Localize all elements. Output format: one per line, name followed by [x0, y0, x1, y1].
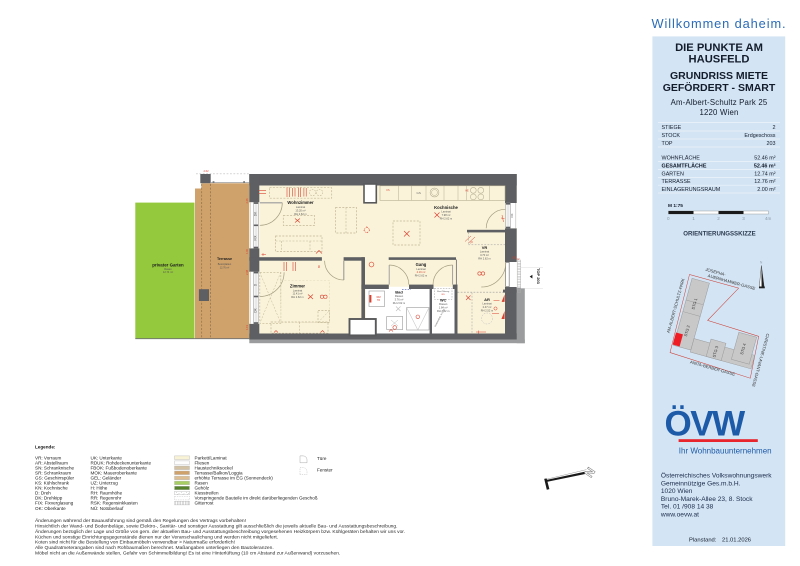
- svg-text:4m: 4m: [765, 216, 772, 221]
- svg-text:Alle Quadratmeterangaben sind: Alle Quadratmeterangaben sind nach Rohba…: [35, 545, 274, 551]
- svg-text:KS: KS: [386, 189, 390, 192]
- svg-text:100: 100: [512, 256, 517, 260]
- svg-text:HE: HE: [465, 189, 469, 192]
- svg-text:Koten sind nicht für die Beste: Koten sind nicht für die Bestellung von …: [35, 540, 235, 546]
- svg-text:Türe: Türe: [317, 456, 327, 461]
- svg-text:GARTEN: GARTEN: [662, 171, 684, 177]
- svg-text:12.76 m²: 12.76 m²: [220, 266, 230, 269]
- svg-text:RH 2.62 m: RH 2.62 m: [478, 256, 490, 260]
- svg-text:Kochnische: Kochnische: [434, 205, 458, 210]
- svg-text:3.70 m²: 3.70 m²: [480, 253, 489, 257]
- svg-text:Wohnzimmer: Wohnzimmer: [287, 200, 314, 205]
- svg-text:GESAMTFLÄCHE: GESAMTFLÄCHE: [662, 162, 707, 169]
- svg-text:Änderungen während der Bauausf: Änderungen während der Bauausführung sin…: [35, 517, 246, 524]
- svg-text:Tel. 01 /908 14 38: Tel. 01 /908 14 38: [661, 504, 714, 511]
- svg-text:1.00: 1.00: [245, 248, 249, 254]
- svg-text:2.62: 2.62: [204, 169, 210, 173]
- svg-text:DIE PUNKTE AM: DIE PUNKTE AM: [675, 42, 763, 54]
- svg-text:Erdgeschoss: Erdgeschoss: [744, 133, 775, 139]
- svg-text:Am-Albert-Schultz Park 25: Am-Albert-Schultz Park 25: [671, 98, 768, 107]
- svg-text:RH 2.62 m: RH 2.62 m: [294, 212, 306, 216]
- svg-text:Laminat: Laminat: [480, 250, 490, 254]
- svg-text:Laminat: Laminat: [296, 205, 306, 209]
- svg-text:M 1:75: M 1:75: [668, 203, 683, 209]
- svg-text:Bad: Bad: [395, 290, 403, 295]
- svg-text:RH 2.62 m: RH 2.62 m: [440, 216, 452, 220]
- svg-text:Fliesen: Fliesen: [395, 294, 404, 298]
- svg-text:privater Garten: privater Garten: [152, 262, 184, 267]
- svg-text:Laminat: Laminat: [441, 210, 451, 214]
- svg-text:STOCK: STOCK: [662, 133, 681, 139]
- svg-text:3.76 m²: 3.76 m²: [395, 298, 404, 302]
- svg-text:ORIENTIERUNGSSKIZZE: ORIENTIERUNGSSKIZZE: [683, 231, 755, 238]
- svg-text:1220 Wien: 1220 Wien: [699, 108, 738, 117]
- svg-text:52.46 m²: 52.46 m²: [754, 155, 775, 161]
- svg-text:4.16 m²: 4.16 m²: [417, 270, 426, 274]
- svg-text:Möbel nicht an die Außenwände: Möbel nicht an die Außenwände stellen, G…: [35, 551, 340, 557]
- svg-text:Fenster: Fenster: [317, 467, 333, 472]
- svg-text:3: 3: [742, 216, 745, 221]
- svg-text:1: 1: [692, 216, 695, 221]
- svg-text:RH 2.62 m: RH 2.62 m: [415, 274, 427, 278]
- svg-text:7.98 m²: 7.98 m²: [442, 213, 451, 217]
- svg-text:WOHNFLÄCHE: WOHNFLÄCHE: [662, 154, 701, 161]
- svg-text:0: 0: [667, 216, 670, 221]
- svg-text:2: 2: [773, 125, 776, 131]
- svg-text:TOP 203: TOP 203: [536, 268, 541, 285]
- svg-text:Rev.Öffnung: Rev.Öffnung: [437, 290, 450, 293]
- svg-text:TERRASSE: TERRASSE: [662, 179, 691, 185]
- svg-text:Betonplatten: Betonplatten: [218, 263, 232, 266]
- svg-text:RH 2.62 m: RH 2.62 m: [437, 309, 449, 313]
- svg-text:EINLAGERUNGSRAUM: EINLAGERUNGSRAUM: [662, 187, 721, 193]
- svg-text:2.47 m²: 2.47 m²: [483, 305, 492, 309]
- svg-text:11.41 m²: 11.41 m²: [292, 292, 302, 296]
- svg-text:STIEGE: STIEGE: [662, 125, 682, 131]
- svg-text:Österreichisches Volkswohnungs: Österreichisches Volkswohnungswerk: [661, 472, 772, 480]
- svg-text:203: 203: [767, 141, 776, 147]
- svg-text:WC: WC: [440, 299, 447, 303]
- svg-text:DK: DK: [510, 213, 514, 217]
- svg-text:RH 2.62 m: RH 2.62 m: [393, 301, 405, 305]
- svg-text:12.74 m²: 12.74 m²: [754, 171, 775, 177]
- svg-text:Gitterrost: Gitterrost: [195, 501, 215, 506]
- svg-text:GS: GS: [417, 191, 421, 195]
- svg-text:Laminat: Laminat: [293, 288, 303, 292]
- svg-text:Laminat: Laminat: [416, 267, 426, 271]
- svg-text:Hinsichtlich der Wand- und Bod: Hinsichtlich der Wand- und Bodenbeläge, …: [35, 524, 397, 530]
- svg-text:RH 2.52 m: RH 2.52 m: [481, 309, 493, 313]
- svg-text:AR: AR: [484, 297, 490, 302]
- svg-text:21.01.2026: 21.01.2026: [722, 538, 751, 544]
- svg-text:1020 Wien: 1020 Wien: [661, 488, 693, 495]
- svg-text:Bruno-Marek-Allee 23, 8. Stock: Bruno-Marek-Allee 23, 8. Stock: [661, 496, 753, 503]
- svg-text:GEFÖRDERT - SMART: GEFÖRDERT - SMART: [663, 81, 776, 94]
- svg-text:2.38: 2.38: [245, 269, 249, 275]
- svg-text:www.oevw.at: www.oevw.at: [660, 511, 699, 518]
- svg-text:NÜ: Notüberlauf: NÜ: Notüberlauf: [91, 505, 125, 511]
- svg-text:ÖVW: ÖVW: [665, 405, 746, 444]
- svg-text:13.20 m²: 13.20 m²: [295, 208, 305, 212]
- svg-text:RH 2.62 m: RH 2.62 m: [291, 295, 303, 299]
- svg-text:Gemeinnützige Ges.m.b.H.: Gemeinnützige Ges.m.b.H.: [661, 481, 741, 488]
- svg-text:Änderungen bezüglich der Lage: Änderungen bezüglich der Lage und Größe …: [35, 528, 405, 535]
- svg-text:VR: VR: [482, 245, 488, 250]
- svg-text:1.19: 1.19: [245, 324, 249, 330]
- svg-text:N: N: [760, 261, 763, 265]
- svg-text:2.00 m²: 2.00 m²: [757, 187, 775, 193]
- svg-text:Zimmer: Zimmer: [290, 284, 305, 289]
- svg-text:2: 2: [717, 216, 720, 221]
- svg-text:52.46 m²: 52.46 m²: [754, 163, 776, 169]
- svg-text:HAUSFELD: HAUSFELD: [689, 54, 750, 66]
- svg-text:12.74 m²: 12.74 m²: [163, 270, 173, 274]
- svg-text:Legende:: Legende:: [35, 445, 56, 450]
- svg-text:FIX: FIX: [253, 235, 257, 241]
- svg-text:1.84 m²: 1.84 m²: [439, 305, 448, 309]
- svg-text:12.76 m²: 12.76 m²: [754, 179, 775, 185]
- svg-text:2.26: 2.26: [245, 198, 249, 204]
- svg-text:Küchen und sonstige Einrichtun: Küchen und sonstige Einrichtungsgegenstä…: [35, 535, 278, 541]
- svg-text:Planstand:: Planstand:: [689, 538, 717, 544]
- svg-text:GRUNDRISS MIETE: GRUNDRISS MIETE: [670, 70, 768, 82]
- svg-text:Gang: Gang: [416, 262, 427, 267]
- svg-text:Terrasse: Terrasse: [217, 257, 232, 261]
- svg-text:OK: Oberkante: OK: Oberkante: [35, 506, 66, 511]
- svg-text:Willkommen daheim.: Willkommen daheim.: [652, 16, 787, 31]
- svg-text:TR: TR: [377, 299, 380, 302]
- svg-text:Ihr Wohnbauunternehmen: Ihr Wohnbauunternehmen: [679, 447, 772, 456]
- svg-text:TOP: TOP: [662, 141, 673, 147]
- svg-text:Laminat: Laminat: [482, 302, 492, 306]
- svg-text:RD: RD: [442, 294, 446, 296]
- svg-text:Fliesen: Fliesen: [439, 302, 448, 306]
